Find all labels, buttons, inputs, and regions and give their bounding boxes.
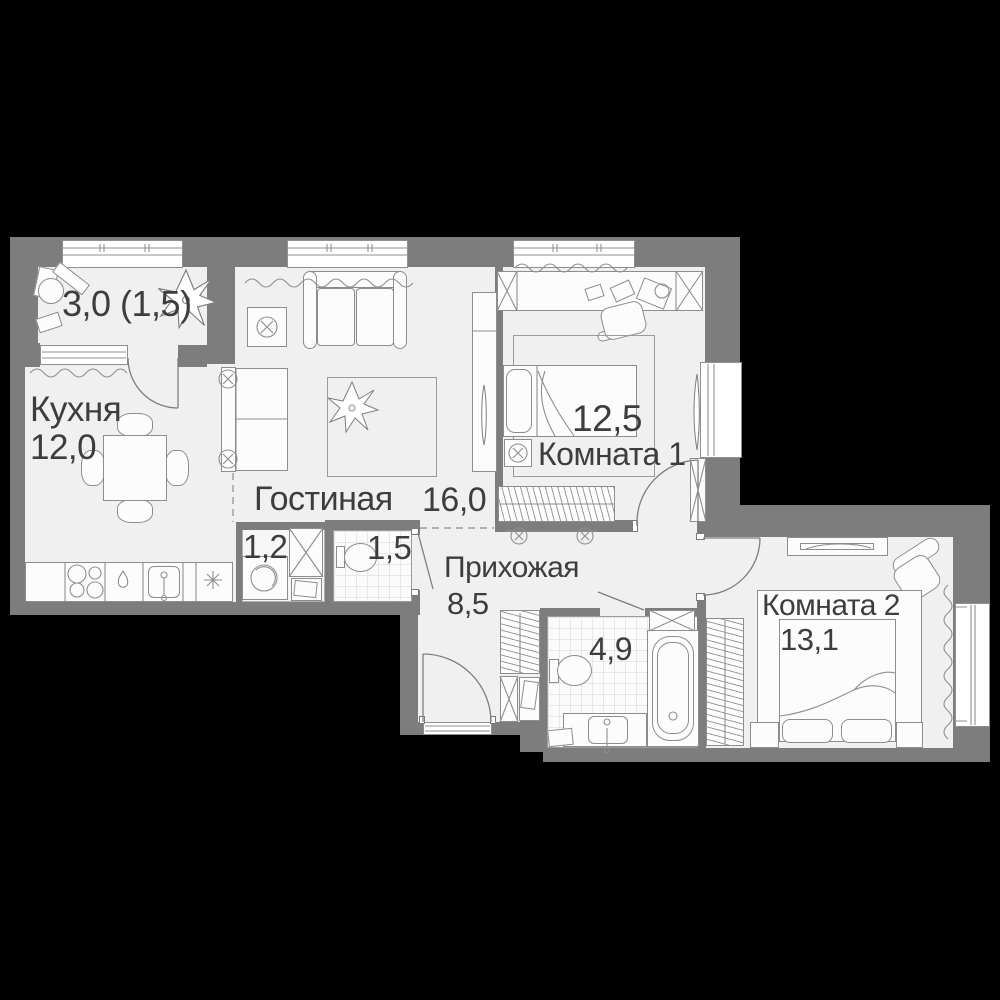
room1-name: Комната 1	[538, 438, 685, 470]
bathroom-label: 4,9	[589, 633, 632, 665]
room2-door-jamb-top	[696, 533, 705, 540]
entrance-jamb-left	[419, 716, 425, 724]
kitchen-table	[103, 435, 167, 501]
bath-toilet-bowl	[557, 655, 592, 686]
wall-bottom-right	[543, 748, 990, 762]
kitchen-name: Кухня	[30, 392, 121, 427]
sofa-top-back	[304, 271, 406, 288]
wall-storage-wc	[325, 520, 333, 602]
room1-nightstand	[504, 439, 532, 467]
living-window	[287, 240, 408, 268]
room2-wardrobe	[706, 618, 744, 746]
living-area: 16,0	[422, 483, 486, 517]
hallway-wardrobe	[500, 610, 540, 674]
bath-mat	[547, 728, 574, 748]
room2-side-window	[955, 603, 990, 727]
room2-pillow-1	[782, 719, 833, 743]
balcony-door-window	[40, 345, 128, 365]
room1-top-window	[513, 240, 635, 268]
wall-left	[10, 237, 25, 615]
living-name: Гостиная	[254, 482, 393, 516]
wall-kitchen-bottom	[10, 602, 420, 615]
hallway-area: 8,5	[447, 588, 489, 619]
entrance-jamb-right	[490, 716, 496, 724]
entrance-threshold	[423, 722, 492, 735]
wall-bath-top-left	[543, 608, 600, 616]
wc-door-jamb-top	[411, 528, 419, 535]
tv-table	[247, 307, 287, 347]
balcony-label: 3,0 (1,5)	[62, 286, 192, 322]
storage-label: 1,2	[243, 530, 287, 563]
room1-door-jamb	[632, 520, 638, 532]
kitchen-chair-right	[165, 450, 189, 486]
balcony-chair	[38, 278, 64, 304]
sofa-top-armrest-left	[303, 271, 317, 349]
wall-room2-top	[740, 505, 953, 537]
bath-sink	[588, 716, 628, 744]
room2-name: Комната 2	[762, 591, 900, 621]
bathtub-inner-2	[657, 642, 689, 734]
wall-hall-left	[400, 608, 418, 735]
wc-label: 1,5	[367, 531, 411, 564]
room2-bed-platform-left	[750, 722, 779, 748]
sofa-left-armrest	[221, 367, 236, 472]
kitchen-counter	[25, 562, 233, 602]
living-rug	[327, 377, 437, 477]
room2-pillow-2	[841, 719, 892, 743]
storage-shelf-item	[293, 580, 318, 598]
room1-area: 12,5	[572, 400, 642, 437]
sofa-top-cushion-2	[356, 288, 394, 346]
wall-balcony-right	[207, 267, 235, 364]
balcony-window	[62, 240, 183, 268]
hallway-shoe-cabinet	[500, 676, 518, 722]
room2-bed-platform-right	[896, 722, 923, 748]
wall-hall-bottom-right	[492, 722, 545, 735]
room2-area: 13,1	[780, 624, 838, 655]
room1-door-floor-patch	[637, 518, 698, 532]
room2-tv	[800, 543, 874, 550]
wc-door-jamb-bottom	[411, 589, 419, 596]
sofa-top-cushion-1	[317, 288, 355, 346]
kitchen-sink	[148, 566, 180, 598]
sofa-top-armrest-right	[393, 271, 407, 349]
room1-wardrobe	[498, 486, 615, 522]
floor-plan: 3,0 (1,5) Кухня 12,0 Гостиная 16,0 12,5 …	[0, 0, 1000, 1000]
room2-door-jamb-bottom	[696, 593, 705, 601]
kitchen-chair-bottom	[117, 499, 153, 523]
wall-balcony-sill-left	[25, 343, 40, 367]
sofa-left-seat	[235, 368, 288, 471]
wall-bath-left	[540, 608, 547, 750]
wall-balcony-sill-right	[178, 345, 207, 367]
room1-wall-panel	[690, 458, 706, 522]
storage-cabinet	[289, 528, 323, 577]
bath-shelf	[649, 610, 695, 631]
kitchen-chair-top	[117, 413, 153, 437]
room1-side-window	[700, 362, 742, 458]
room1-pillow	[506, 369, 532, 433]
living-cabinet	[472, 292, 497, 472]
kitchen-area: 12,0	[30, 430, 96, 465]
hallway-name: Прихожая	[444, 553, 579, 583]
